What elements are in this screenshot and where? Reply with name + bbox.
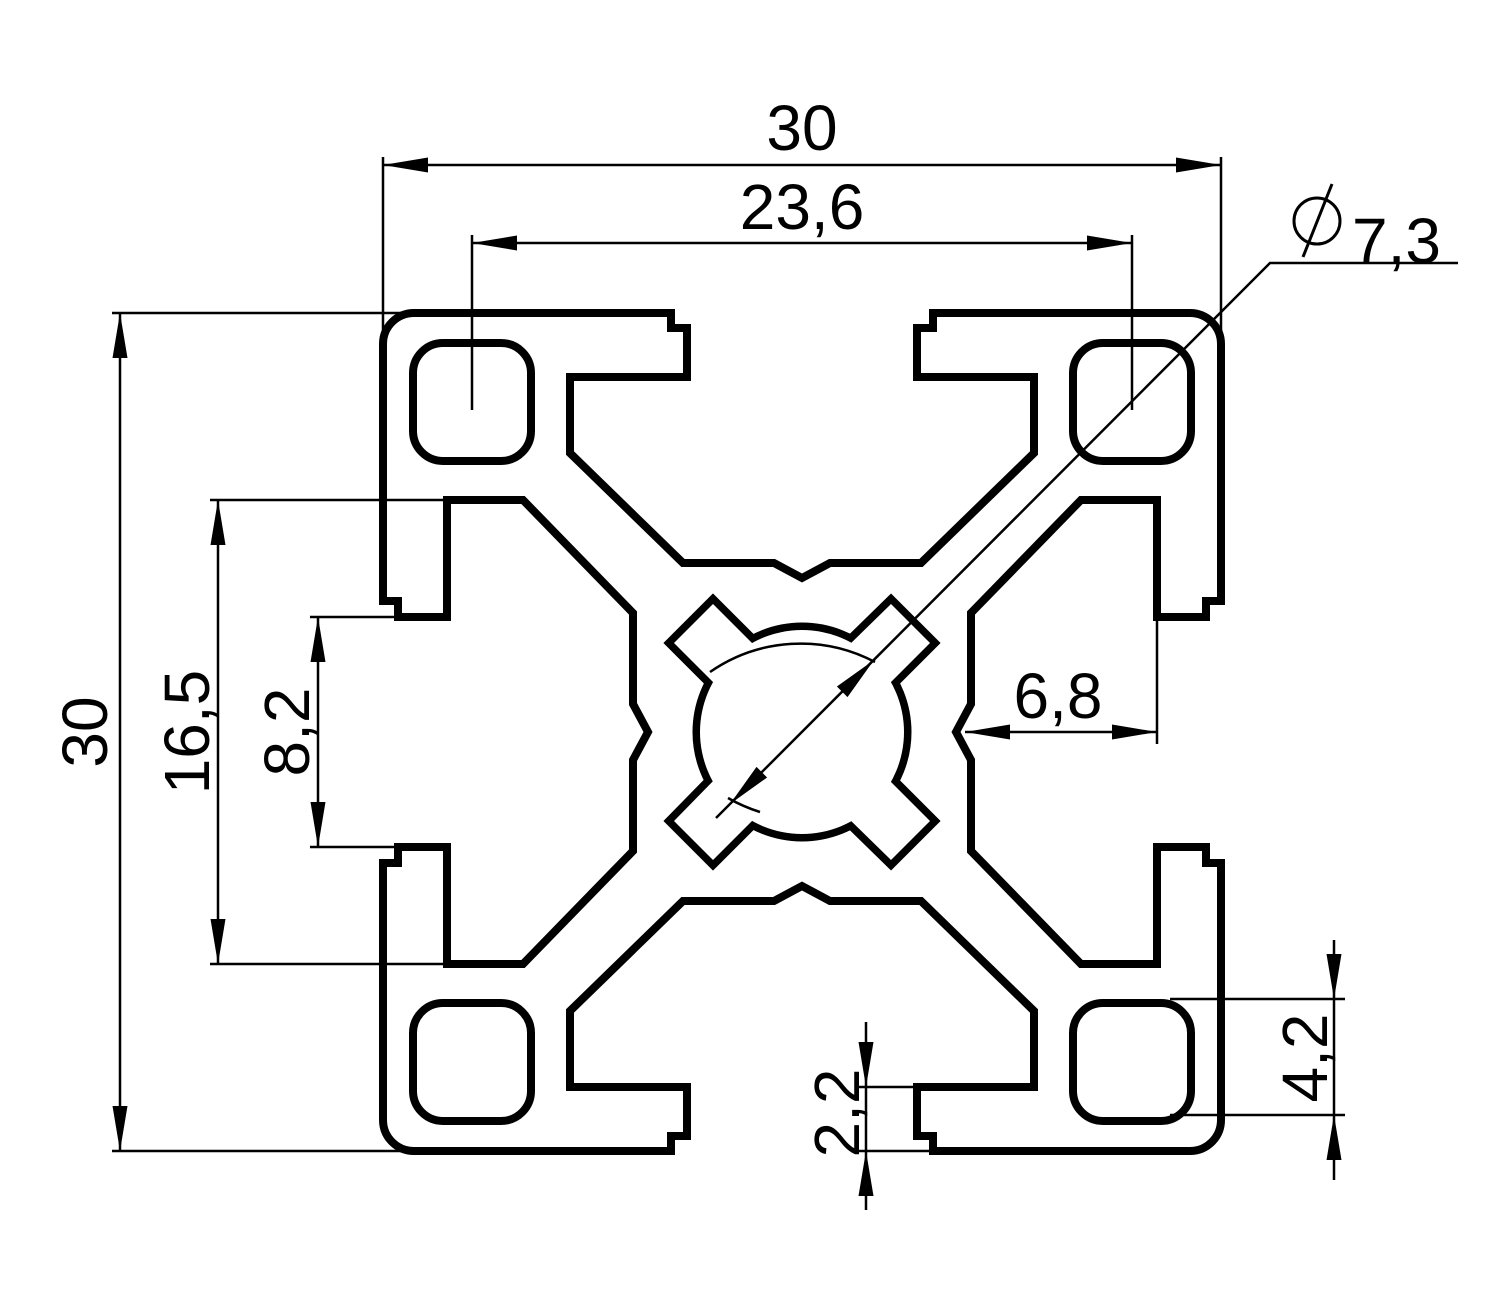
dim-label-hole-pitch: 23,6	[740, 171, 865, 243]
dim-label-slot-opening: 8,2	[251, 688, 323, 777]
corner-hole-bottom-left	[413, 1003, 531, 1121]
dim-label-corner-hole-size: 4,2	[1269, 1014, 1341, 1103]
corner-hole-bottom-right	[1073, 1003, 1191, 1121]
dim-label-overall-height: 30	[49, 696, 121, 767]
dim-label-wall-thickness: 2,2	[801, 1069, 873, 1158]
dim-label-slot-chamber-width: 16,5	[151, 670, 223, 795]
dim-label-overall-width: 30	[766, 92, 837, 164]
dim-label-center-bore: 7,3	[1352, 205, 1441, 277]
dim-label-slot-depth: 6,8	[1014, 660, 1103, 732]
technical-drawing: 30 23,6 7,3 30 16,5	[0, 0, 1500, 1300]
drawing-canvas: 30 23,6 7,3 30 16,5	[0, 0, 1500, 1300]
